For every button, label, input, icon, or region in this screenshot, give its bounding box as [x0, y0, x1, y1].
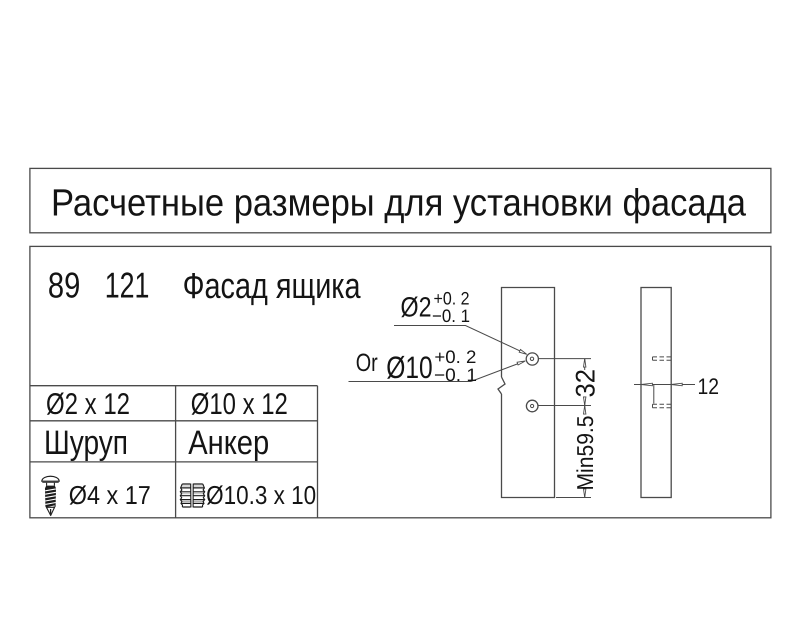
svg-text:Min59.5: Min59.5 — [572, 416, 598, 491]
svg-text:Or: Or — [356, 349, 378, 377]
svg-text:Ø2 x 12: Ø2 x 12 — [46, 388, 130, 421]
svg-text:Шуруп: Шуруп — [44, 424, 128, 462]
svg-text:+0. 2: +0. 2 — [434, 347, 476, 367]
svg-text:Ø10: Ø10 — [386, 350, 432, 385]
svg-text:Ø2: Ø2 — [401, 292, 432, 323]
svg-text:−0. 1: −0. 1 — [432, 306, 470, 326]
svg-text:Анкер: Анкер — [188, 424, 269, 462]
svg-text:32: 32 — [571, 369, 601, 398]
svg-text:Фасад ящика: Фасад ящика — [183, 265, 362, 306]
svg-text:121: 121 — [105, 265, 150, 306]
svg-text:−0. 1: −0. 1 — [434, 365, 477, 385]
svg-text:12: 12 — [698, 374, 720, 399]
svg-text:Ø4 x 17: Ø4 x 17 — [69, 480, 151, 510]
svg-text:Ø10 x 12: Ø10 x 12 — [191, 388, 288, 421]
svg-text:Ø10.3 x 10: Ø10.3 x 10 — [206, 480, 316, 510]
svg-text:Расчетные размеры для установк: Расчетные размеры для установки фасада — [51, 183, 747, 225]
svg-text:89: 89 — [48, 265, 80, 306]
